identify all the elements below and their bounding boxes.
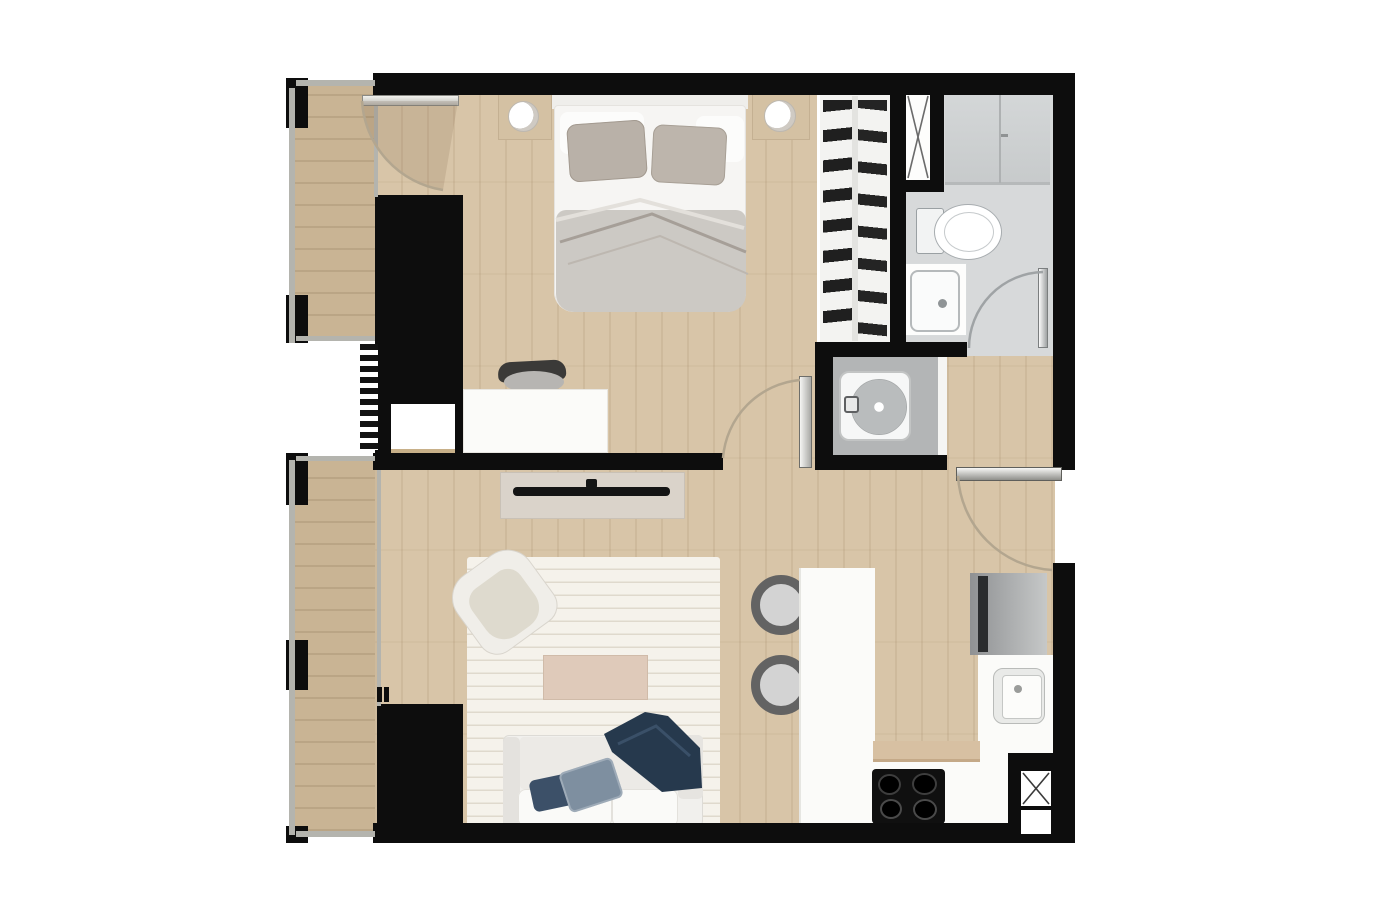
bathroom-door-arc [969,272,1043,348]
bedroom-door-arc [723,380,800,458]
plan-linework [0,0,1380,912]
entry-door-arc [958,476,1052,570]
floor-plan [0,0,1380,912]
